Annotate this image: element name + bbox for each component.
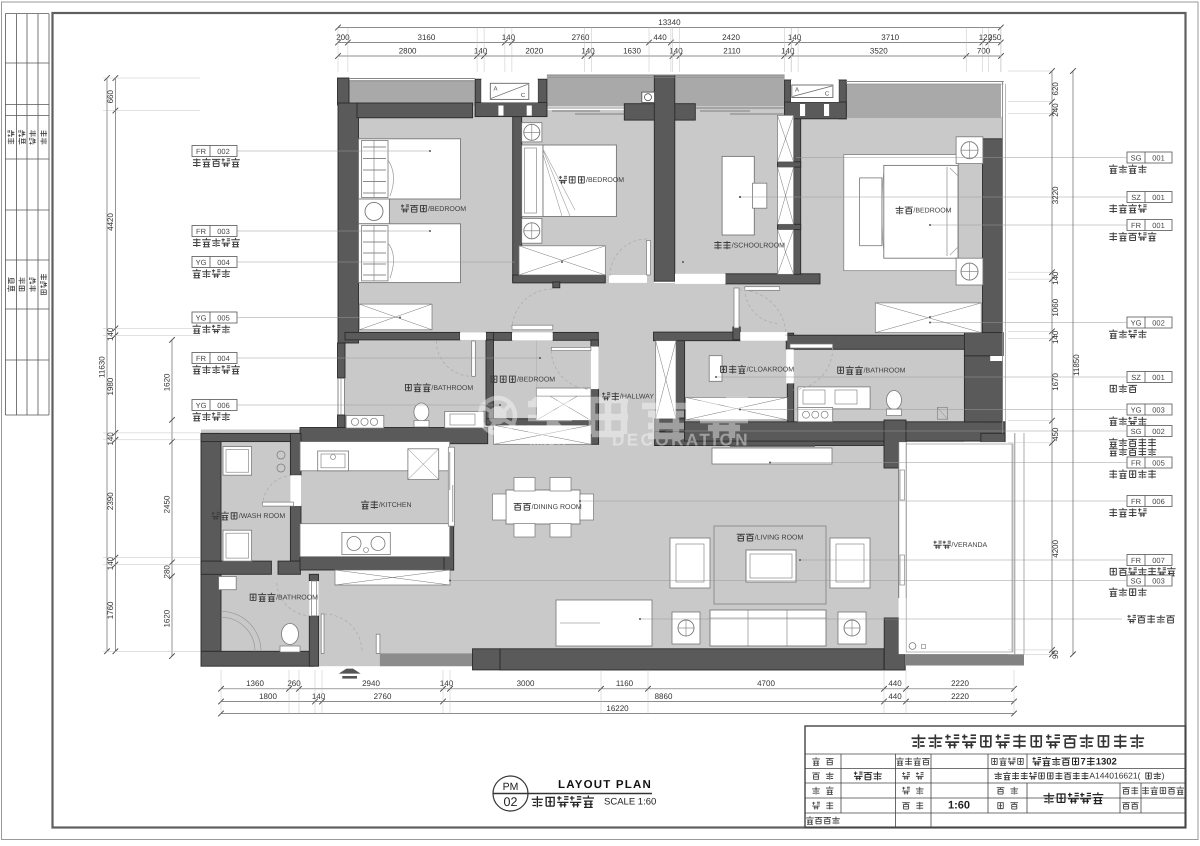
svg-text:SG: SG bbox=[1131, 427, 1142, 436]
svg-text:SG: SG bbox=[1131, 153, 1142, 162]
svg-text:2220: 2220 bbox=[951, 692, 969, 701]
svg-text:005: 005 bbox=[217, 313, 230, 322]
svg-text:1060: 1060 bbox=[1051, 298, 1060, 316]
svg-text:1160: 1160 bbox=[616, 679, 634, 688]
svg-text:7: 7 bbox=[1081, 757, 1086, 768]
svg-text:001: 001 bbox=[1152, 153, 1165, 162]
svg-text:700: 700 bbox=[977, 47, 991, 56]
svg-text:140: 140 bbox=[1051, 271, 1060, 285]
svg-text:C: C bbox=[825, 91, 830, 98]
svg-text:A144016621(: A144016621( bbox=[1089, 771, 1140, 781]
svg-text:/SCHOOLROOM: /SCHOOLROOM bbox=[732, 241, 785, 249]
svg-text:450: 450 bbox=[1051, 427, 1060, 441]
svg-text:1620: 1620 bbox=[163, 373, 172, 391]
svg-text:1620: 1620 bbox=[163, 609, 172, 627]
svg-text:/HALLWAY: /HALLWAY bbox=[620, 393, 654, 401]
svg-text:/DINING ROOM: /DINING ROOM bbox=[532, 503, 582, 511]
svg-text:004: 004 bbox=[217, 258, 230, 267]
svg-text:/BATHROOM: /BATHROOM bbox=[864, 367, 906, 375]
svg-text:): ) bbox=[1162, 771, 1165, 781]
svg-text:YG: YG bbox=[196, 313, 207, 322]
svg-text:2760: 2760 bbox=[572, 33, 590, 42]
svg-text:002: 002 bbox=[217, 147, 230, 156]
svg-text:SZ: SZ bbox=[1131, 193, 1141, 202]
svg-text:005: 005 bbox=[1152, 458, 1165, 467]
svg-text:A: A bbox=[493, 86, 497, 93]
svg-text:11630: 11630 bbox=[97, 356, 106, 378]
svg-text:1670: 1670 bbox=[1051, 373, 1060, 391]
svg-text:440: 440 bbox=[653, 33, 667, 42]
svg-text:003: 003 bbox=[1152, 576, 1165, 585]
svg-text:8860: 8860 bbox=[655, 692, 673, 701]
svg-text:2760: 2760 bbox=[374, 692, 392, 701]
svg-text:2220: 2220 bbox=[951, 679, 969, 688]
svg-text:001: 001 bbox=[1152, 221, 1165, 230]
svg-text:/KITCHEN: /KITCHEN bbox=[379, 501, 412, 509]
svg-text:YG: YG bbox=[1131, 318, 1142, 327]
svg-text:FR: FR bbox=[196, 227, 207, 236]
svg-text:/BEDROOM: /BEDROOM bbox=[913, 206, 951, 214]
svg-text:440: 440 bbox=[888, 692, 902, 701]
svg-text:007: 007 bbox=[1152, 556, 1165, 565]
svg-text:006: 006 bbox=[217, 401, 230, 410]
svg-text:003: 003 bbox=[1152, 405, 1165, 414]
svg-text:1:60: 1:60 bbox=[948, 800, 970, 812]
svg-text:02: 02 bbox=[504, 795, 518, 809]
svg-text:4700: 4700 bbox=[757, 679, 775, 688]
svg-text:003: 003 bbox=[217, 227, 230, 236]
svg-text:13340: 13340 bbox=[658, 18, 681, 27]
svg-text:140: 140 bbox=[312, 692, 326, 701]
svg-text:/CLOAKROOM: /CLOAKROOM bbox=[747, 366, 795, 374]
svg-text:/BEDROOM: /BEDROOM bbox=[586, 176, 624, 184]
svg-text:002: 002 bbox=[1152, 427, 1165, 436]
svg-text:3520: 3520 bbox=[870, 47, 888, 56]
svg-text:FR: FR bbox=[196, 354, 207, 363]
svg-text:A: A bbox=[795, 87, 799, 94]
svg-text:140: 140 bbox=[440, 679, 454, 688]
svg-text:YG: YG bbox=[196, 258, 207, 267]
svg-text:LAYOUT PLAN: LAYOUT PLAN bbox=[558, 779, 652, 791]
svg-text:PM: PM bbox=[503, 781, 519, 793]
svg-text:140: 140 bbox=[502, 33, 516, 42]
svg-text:/BATHROOM: /BATHROOM bbox=[276, 594, 318, 602]
svg-text:3000: 3000 bbox=[517, 679, 535, 688]
svg-text:SCALE 1:60: SCALE 1:60 bbox=[604, 797, 656, 808]
svg-text:90: 90 bbox=[1051, 650, 1060, 659]
svg-text:2020: 2020 bbox=[525, 47, 543, 56]
svg-text:FR: FR bbox=[1131, 221, 1142, 230]
svg-text:/BATHROOM: /BATHROOM bbox=[431, 384, 473, 392]
svg-text:/WASH ROOM: /WASH ROOM bbox=[239, 512, 286, 520]
svg-text:240: 240 bbox=[1051, 103, 1060, 117]
svg-text:11850: 11850 bbox=[1072, 354, 1081, 376]
svg-text:140: 140 bbox=[581, 47, 595, 56]
svg-text:140: 140 bbox=[781, 47, 795, 56]
svg-text:2940: 2940 bbox=[362, 679, 380, 688]
svg-text:1800: 1800 bbox=[259, 692, 277, 701]
svg-text:001: 001 bbox=[1152, 193, 1165, 202]
svg-text:/BEDROOM: /BEDROOM bbox=[428, 205, 466, 213]
svg-text:YG: YG bbox=[196, 401, 207, 410]
svg-text:SZ: SZ bbox=[1131, 373, 1141, 382]
svg-text:FR: FR bbox=[196, 147, 207, 156]
svg-text:FR: FR bbox=[1131, 458, 1142, 467]
svg-text:140: 140 bbox=[1051, 330, 1060, 344]
svg-text:1360: 1360 bbox=[246, 679, 264, 688]
svg-text:006: 006 bbox=[1152, 497, 1165, 506]
svg-text:440: 440 bbox=[888, 679, 902, 688]
svg-text:2420: 2420 bbox=[722, 33, 740, 42]
svg-text:1302: 1302 bbox=[1096, 757, 1117, 768]
svg-text:16220: 16220 bbox=[606, 704, 629, 713]
svg-text:004: 004 bbox=[217, 354, 230, 363]
svg-text:4200: 4200 bbox=[1051, 539, 1060, 557]
svg-text:2800: 2800 bbox=[399, 47, 417, 56]
svg-text:1630: 1630 bbox=[623, 47, 641, 56]
svg-text:620: 620 bbox=[1051, 82, 1060, 96]
svg-text:140: 140 bbox=[474, 47, 488, 56]
svg-text:FR: FR bbox=[1131, 556, 1142, 565]
svg-text:140: 140 bbox=[788, 33, 802, 42]
svg-text:3710: 3710 bbox=[881, 33, 899, 42]
svg-text:C: C bbox=[521, 92, 526, 99]
svg-text:YG: YG bbox=[1131, 405, 1142, 414]
svg-text:2110: 2110 bbox=[723, 47, 741, 56]
svg-text:140: 140 bbox=[669, 47, 683, 56]
svg-text:FR: FR bbox=[1131, 497, 1142, 506]
svg-text:2450: 2450 bbox=[163, 495, 172, 513]
svg-text:002: 002 bbox=[1152, 318, 1165, 327]
svg-text:3160: 3160 bbox=[418, 33, 436, 42]
svg-text:XINGYI: XINGYI bbox=[530, 437, 567, 447]
svg-text:250: 250 bbox=[988, 33, 1002, 42]
svg-text:SG: SG bbox=[1131, 576, 1142, 585]
svg-text:001: 001 bbox=[1152, 373, 1165, 382]
svg-text:/LIVING ROOM: /LIVING ROOM bbox=[755, 534, 804, 542]
svg-text:DECORATION: DECORATION bbox=[612, 431, 750, 450]
svg-text:/BEDROOM: /BEDROOM bbox=[517, 375, 555, 383]
svg-text:280: 280 bbox=[163, 565, 172, 579]
svg-text:/VERANDA: /VERANDA bbox=[951, 541, 987, 549]
svg-text:3220: 3220 bbox=[1051, 186, 1060, 204]
